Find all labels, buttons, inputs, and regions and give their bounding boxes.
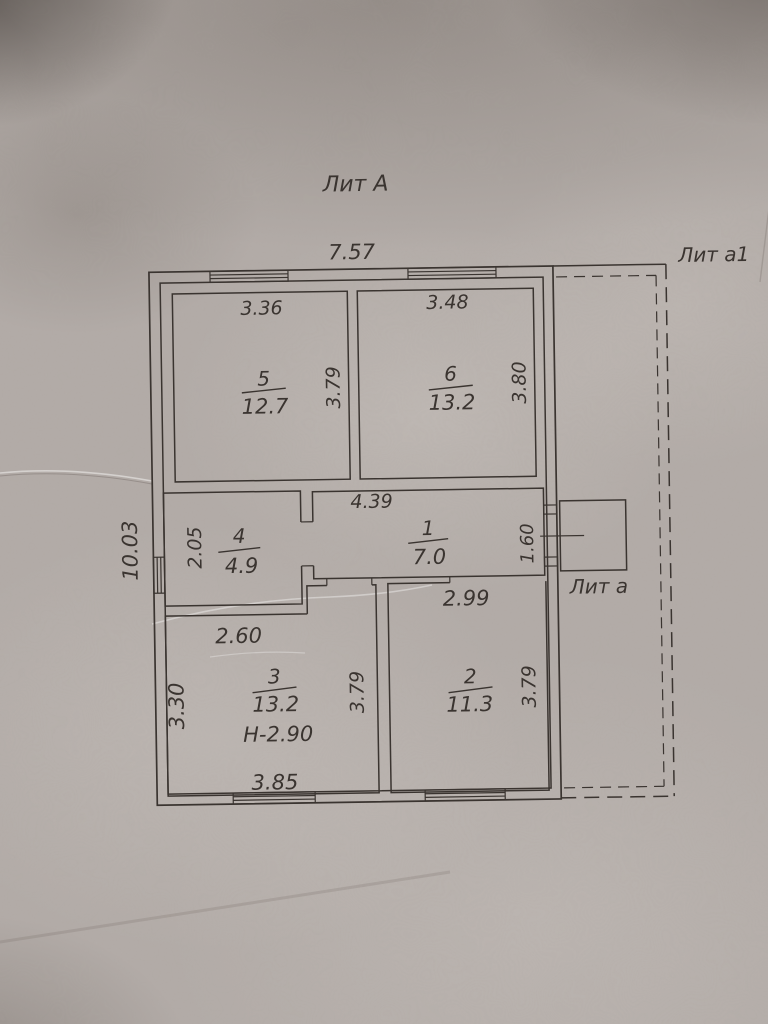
room-6-dim-right: 3.80 [508,361,531,404]
floor-plan-photo: Лит А 7.57 Лит а1 Лит а 10.03 [0,0,768,1024]
room-5-area: 12.7 [241,394,289,419]
room-1-area: 7.0 [413,545,447,570]
dim-overall-depth: 10.03 [118,520,143,580]
room-3-dim-left: 3.30 [164,682,189,729]
porch-label: Лит а [569,574,629,599]
room-4-dim-left: 2.05 [184,526,207,569]
dim-leader-line [540,536,584,537]
room-5-number: 5 [257,366,270,390]
floor-plan-drawing: Лит А 7.57 Лит а1 Лит а 10.03 [0,0,768,1024]
room-2-area: 11.3 [446,692,493,717]
room-1-dim-top: 4.39 [350,491,393,514]
room-2-number: 2 [464,664,477,688]
room-5-dim-top: 3.36 [240,297,283,320]
room-1-dim-right: 1.60 [517,523,539,563]
room-6-area: 13.2 [428,390,475,415]
room-4-number: 4 [233,524,246,548]
veranda-label: Лит а1 [677,242,749,267]
room-3-dim-bottom: 3.85 [251,770,298,795]
room-2-dim-top: 2.99 [443,586,490,611]
room-3-ceiling-height: Н-2.90 [243,722,314,747]
room-1-number: 1 [421,516,434,540]
room-4-area: 4.9 [225,554,259,579]
room-3-number: 3 [268,664,281,688]
room-2-dim-right: 3.79 [518,665,541,708]
room-5-dim-right: 3.79 [322,366,345,409]
dim-overall-width: 7.57 [328,240,376,265]
building-title: Лит А [322,172,389,198]
room-3-dim-top: 2.60 [215,624,262,649]
room-3-area: 13.2 [252,692,299,717]
room-3-dim-right: 3.79 [346,671,369,714]
room-6-dim-top: 3.48 [426,291,469,314]
room-6-number: 6 [444,361,457,385]
